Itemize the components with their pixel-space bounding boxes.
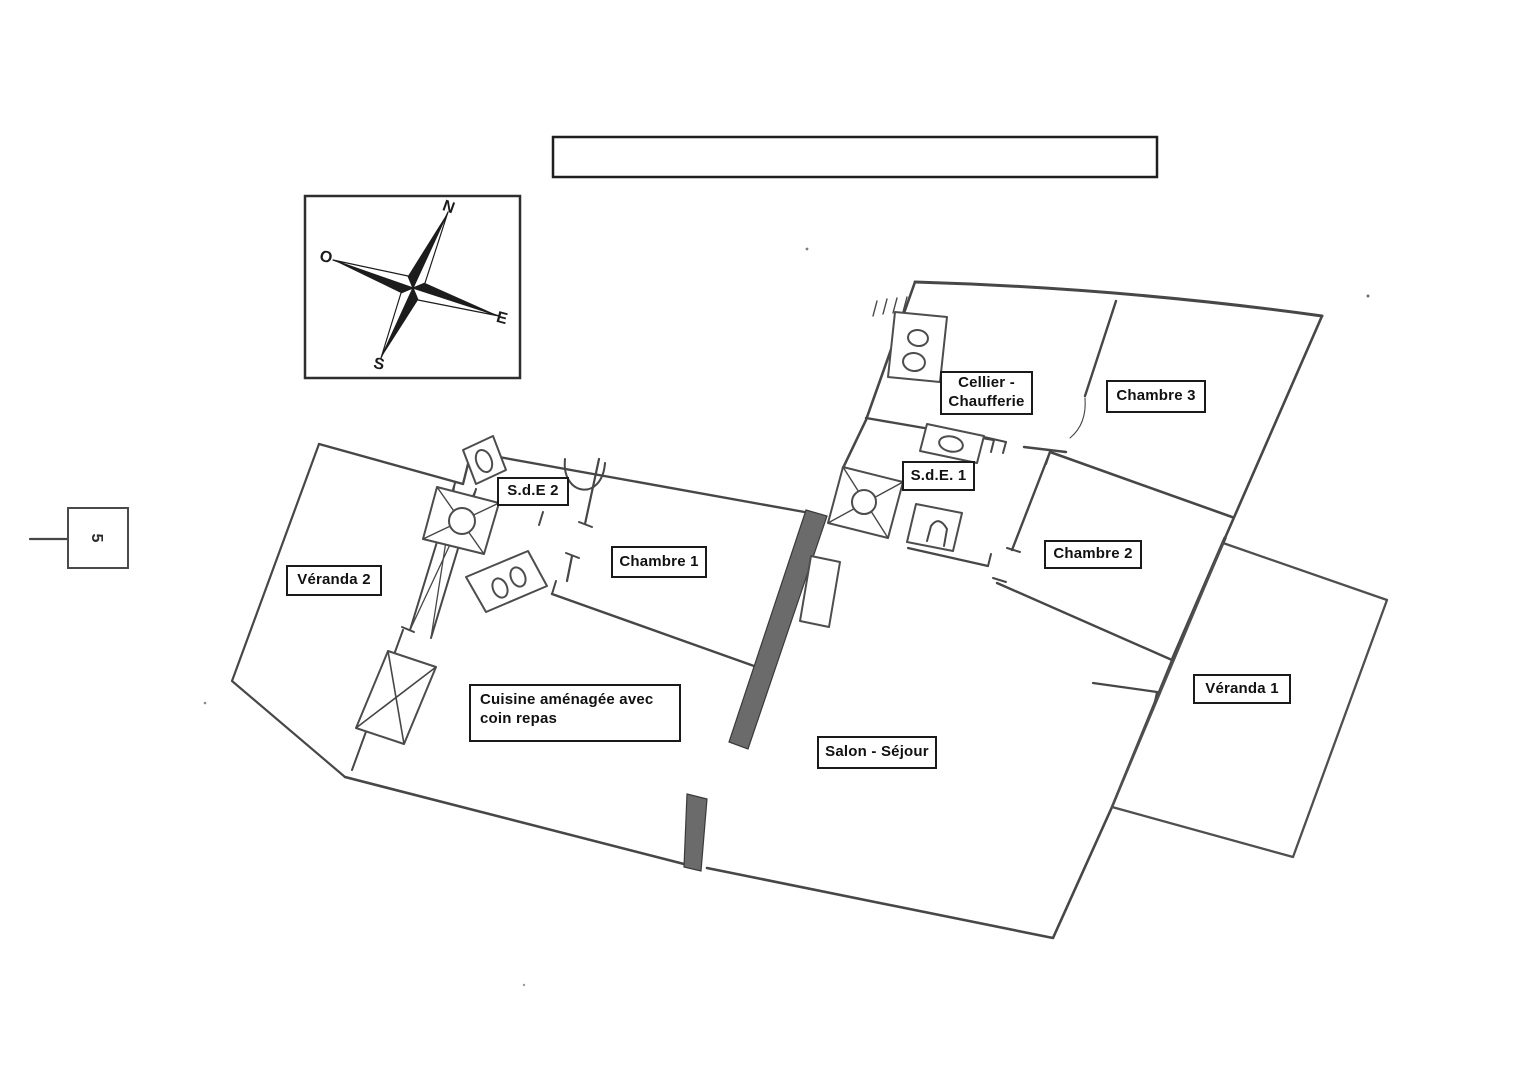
scale-marker: 5 bbox=[30, 508, 128, 568]
title-box bbox=[553, 137, 1157, 177]
sde2-shower-icon bbox=[423, 487, 499, 554]
chambre1-bottom-wall bbox=[552, 594, 754, 666]
chambre2-west-wall bbox=[1012, 452, 1050, 550]
chambre1-west-wall bbox=[585, 459, 599, 524]
room-label-sde-1: S.d.E. 1 bbox=[902, 461, 975, 491]
floor-plan-page: N O E S 5 bbox=[0, 0, 1527, 1080]
room-label-cellier-chaufferie: Cellier - Chaufferie bbox=[940, 371, 1033, 415]
right-top-wall bbox=[915, 282, 1322, 316]
room-label-cuisine: Cuisine aménagée avec coin repas bbox=[469, 684, 681, 742]
room-label-sde-2: S.d.E 2 bbox=[497, 477, 569, 506]
left-building-walls bbox=[232, 444, 810, 864]
floor-plan-drawing: N O E S 5 bbox=[0, 0, 1527, 1080]
room-label-veranda-1: Véranda 1 bbox=[1193, 674, 1291, 704]
salon-veranda-stub bbox=[1093, 683, 1157, 692]
cellier-boiler-icon bbox=[888, 312, 947, 382]
room-label-chambre-1: Chambre 1 bbox=[611, 546, 707, 578]
party-wall-upper bbox=[729, 510, 827, 749]
compass-rose: N O E S bbox=[305, 196, 520, 378]
room-label-chambre-3: Chambre 3 bbox=[1106, 380, 1206, 413]
chambre2-top-wall bbox=[1050, 452, 1232, 517]
party-wall-lower bbox=[684, 794, 707, 871]
room-label-salon-sejour: Salon - Séjour bbox=[817, 736, 937, 769]
sde1-wc-icon bbox=[907, 504, 962, 551]
room-label-veranda-2: Véranda 2 bbox=[286, 565, 382, 596]
room-label-chambre-2: Chambre 2 bbox=[1044, 540, 1142, 569]
sde2-wc-icon bbox=[466, 551, 547, 612]
salon-bottom-wall bbox=[707, 807, 1112, 938]
kitchen-crossed-box bbox=[356, 651, 436, 744]
veranda2-wall bbox=[232, 444, 345, 777]
sde1-shower-icon bbox=[828, 467, 903, 538]
chambre2-bottom-wall bbox=[997, 583, 1172, 660]
scale-marker-label: 5 bbox=[88, 534, 105, 543]
kitchen-bottom-wall bbox=[345, 777, 684, 864]
right-building-walls bbox=[707, 282, 1387, 938]
